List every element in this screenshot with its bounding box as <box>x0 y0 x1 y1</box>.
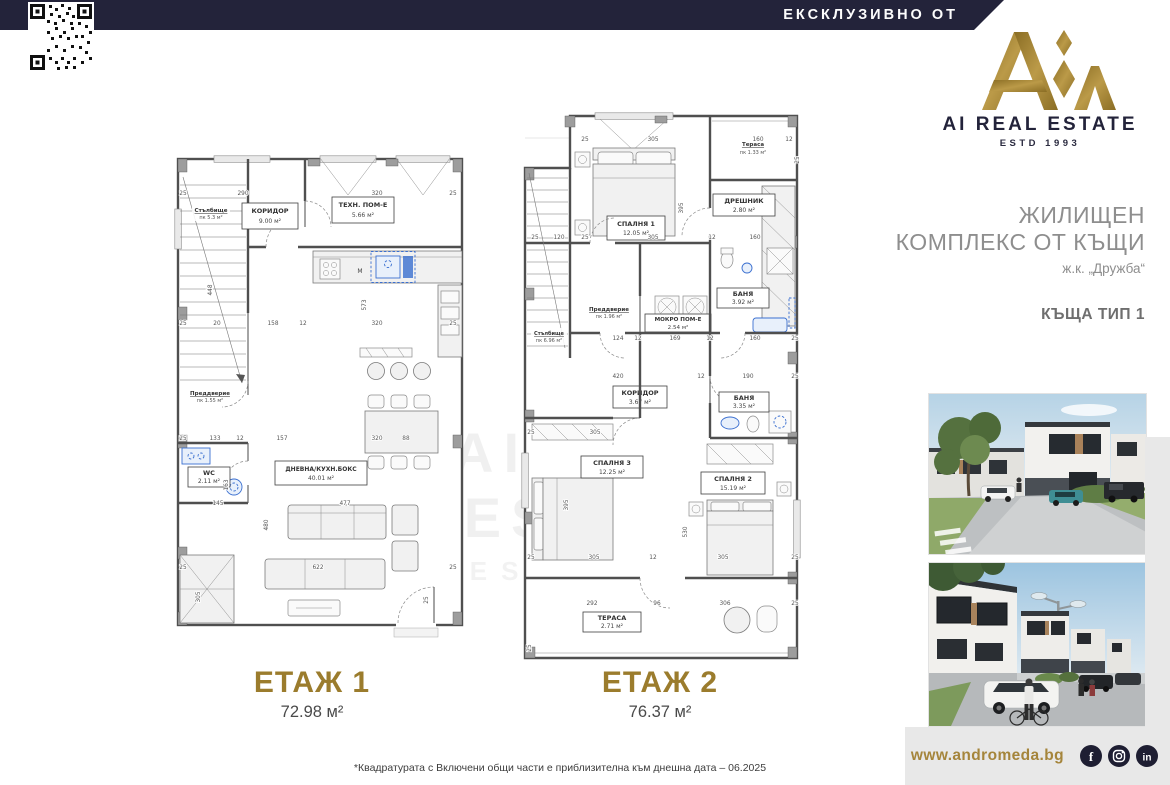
room-label-stairs: Стълбище <box>195 207 228 214</box>
dimension-label: 320 <box>371 321 382 327</box>
house-type-label: КЪЩА ТИП 1 <box>785 306 1145 324</box>
dimension-label: 25 <box>795 156 801 164</box>
dimension-label: 158 <box>267 321 278 327</box>
qr-code <box>28 2 94 72</box>
svg-text:3.35 м²: 3.35 м² <box>733 403 756 410</box>
dimension-label: 320 <box>371 191 382 197</box>
room-label-terrace: ТЕРАСА <box>598 614 626 622</box>
dimension-label: 145 <box>212 501 223 507</box>
svg-text:пк 1.33 м²: пк 1.33 м² <box>740 150 766 156</box>
dimension-label: 160 <box>749 336 760 342</box>
room-label-bedroom3: СПАЛНЯ 3 <box>593 459 631 467</box>
dimension-label: 25 <box>449 321 457 327</box>
dimension-label: 160 <box>749 235 760 241</box>
dimension-label: 12 <box>706 336 714 342</box>
dimension-label: 25 <box>527 430 535 436</box>
room-label-bedroom2: СПАЛНЯ 2 <box>714 475 752 483</box>
room-label-bath1: БАНЯ <box>733 290 753 298</box>
dimension-label: 305 <box>717 555 728 561</box>
room-label-wet: МОКРО ПОМ-Е <box>655 317 702 323</box>
project-location: ж.к. „Дружба“ <box>785 261 1145 276</box>
svg-text:2.11 м²: 2.11 м² <box>198 478 221 485</box>
dimension-label: 25 <box>527 644 533 652</box>
dimension-label: 420 <box>612 374 623 380</box>
dimension-label: 12 <box>785 137 793 143</box>
svg-text:2.54 м²: 2.54 м² <box>668 324 689 331</box>
brand-logo-icon <box>958 24 1126 112</box>
room-label-stairs2: Стълбище <box>534 330 565 337</box>
svg-text:пк 6.96 м²: пк 6.96 м² <box>536 338 562 344</box>
dimension-label: 160 <box>752 137 763 143</box>
floor-plan-1: Стълбище пк 5.3 м² КОРИДОР 9.00 м² ТЕХН.… <box>170 145 470 665</box>
svg-text:f: f <box>1089 749 1094 764</box>
svg-text:2.71 м²: 2.71 м² <box>601 623 624 630</box>
dimension-label: 25 <box>581 235 589 241</box>
brand-estd: ESTD 1993 <box>930 138 1150 149</box>
floor2-area: 76.37 м² <box>540 703 780 722</box>
dimension-label: 12 <box>649 555 657 561</box>
instagram-icon[interactable] <box>1108 745 1130 767</box>
dimension-label: 169 <box>669 336 680 342</box>
footnote: *Квадратурата с Включени общи части е пр… <box>150 762 970 774</box>
svg-text:пк 1.55 м²: пк 1.55 м² <box>197 398 223 404</box>
room-label-bath2: БАНЯ <box>734 394 754 402</box>
dimension-label: 305 <box>196 591 202 602</box>
dimension-label: 12 <box>634 336 642 342</box>
exclusive-label: ЕКСКЛУЗИВНО ОТ <box>0 0 1004 30</box>
svg-text:12.05 м²: 12.05 м² <box>623 230 650 237</box>
svg-text:пк 5.3 м²: пк 5.3 м² <box>199 215 222 221</box>
floor2-tag: ЕТАЖ 2 76.37 м² <box>540 666 780 722</box>
svg-text:12.25 м²: 12.25 м² <box>599 469 626 476</box>
dimension-label: 120 <box>553 235 564 241</box>
dimension-label: 480 <box>264 519 270 530</box>
floor1-title: ЕТАЖ 1 <box>192 666 432 700</box>
photo-complex-street-1 <box>928 393 1147 555</box>
footer-panel: www.andromeda.bg f in <box>905 727 1170 785</box>
dimension-label: 25 <box>424 596 430 604</box>
svg-text:пк 1.96 м²: пк 1.96 м² <box>596 314 622 320</box>
dimension-label: 305 <box>647 137 658 143</box>
dimension-label: 25 <box>531 235 539 241</box>
svg-text:3.92 м²: 3.92 м² <box>732 299 755 306</box>
brochure-page: ЕКСКЛУЗИВНО ОТ AI REAL ESTA <box>0 0 1170 785</box>
project-title-block: ЖИЛИЩЕН КОМПЛЕКС ОТ КЪЩИ ж.к. „Дружба“ К… <box>785 202 1145 324</box>
svg-text:9.00 м²: 9.00 м² <box>259 218 282 225</box>
floor-plan-2: Тераса пк 1.33 м² СПАЛНЯ 1 12.05 м² ДРЕШ… <box>505 108 805 680</box>
room-label-bedroom1: СПАЛНЯ 1 <box>617 220 655 228</box>
room-label-living: ДНЕВНА/КУХН.БОКС <box>285 466 357 473</box>
linkedin-icon[interactable]: in <box>1136 745 1158 767</box>
room-label-entry1: Преддверие <box>190 391 230 397</box>
dimension-label: 88 <box>402 436 410 442</box>
svg-text:40.01 м²: 40.01 м² <box>308 475 335 482</box>
top-banner: ЕКСКЛУЗИВНО ОТ <box>0 0 1004 30</box>
dimension-label: 157 <box>276 436 287 442</box>
dimension-label: 530 <box>683 526 689 537</box>
dimension-label: 96 <box>653 601 661 607</box>
dimension-label: 25 <box>179 565 187 571</box>
dimension-label: 25 <box>791 555 799 561</box>
dimension-label: 25 <box>179 321 187 327</box>
dimension-label: 395 <box>564 499 570 510</box>
floor1-area: 72.98 м² <box>192 703 432 722</box>
room-label-wc: WC <box>203 469 215 477</box>
dimension-label: 12 <box>697 374 705 380</box>
dimension-label: 12 <box>708 235 716 241</box>
dimension-label: 25 <box>527 555 535 561</box>
photo-complex-street-2 <box>928 562 1147 727</box>
brand-name: AI REAL ESTATE <box>930 114 1150 136</box>
dimension-label: 25 <box>581 137 589 143</box>
project-title-line1: ЖИЛИЩЕН <box>785 202 1145 229</box>
room-label-closet: ДРЕШНИК <box>724 197 764 205</box>
dimension-label: 12 <box>236 436 244 442</box>
dimension-label: 190 <box>742 374 753 380</box>
dimension-label: 305 <box>647 235 658 241</box>
dimension-label: 25 <box>179 436 187 442</box>
dimension-label: 290 <box>237 191 248 197</box>
dimension-label: 25 <box>179 191 187 197</box>
svg-text:in: in <box>1143 753 1152 764</box>
svg-text:15.19 м²: 15.19 м² <box>720 485 747 492</box>
dimension-label: 25 <box>791 336 799 342</box>
dimension-label: 305 <box>588 555 599 561</box>
room-label-tech: ТЕХН. ПОМ-Е <box>339 201 388 209</box>
svg-text:2.80 м²: 2.80 м² <box>733 207 756 214</box>
dimension-label: 306 <box>719 601 730 607</box>
floor1-tag: ЕТАЖ 1 72.98 м² <box>192 666 432 722</box>
dimension-label: 25 <box>449 565 457 571</box>
dimension-label: 133 <box>209 436 220 442</box>
room-label-corridor: КОРИДОР <box>251 207 288 215</box>
dimension-label: 395 <box>679 202 685 213</box>
dimension-label: 163 <box>224 479 230 490</box>
svg-text:5.66 м²: 5.66 м² <box>352 212 375 219</box>
dimension-label: 448 <box>208 284 214 295</box>
dimension-label: 25 <box>791 374 799 380</box>
project-title-line2: КОМПЛЕКС ОТ КЪЩИ <box>785 229 1145 256</box>
dimension-label: 477 <box>339 501 350 507</box>
closet-unit <box>180 555 234 623</box>
dimension-label: 320 <box>371 436 382 442</box>
dimension-label: 20 <box>213 321 221 327</box>
washing-machine-label: М <box>357 268 362 275</box>
dimension-label: 25 <box>449 191 457 197</box>
dimension-label: 292 <box>586 601 597 607</box>
room-label-entry2: Преддверие <box>589 307 629 313</box>
facebook-icon[interactable]: f <box>1080 745 1102 767</box>
dimension-label: 124 <box>612 336 623 342</box>
dimension-label: 12 <box>299 321 307 327</box>
floor2-title: ЕТАЖ 2 <box>540 666 780 700</box>
dimension-label: 305 <box>589 430 600 436</box>
dimension-label: 573 <box>362 299 368 310</box>
dimension-label: 622 <box>312 565 323 571</box>
dimension-label: 25 <box>791 601 799 607</box>
